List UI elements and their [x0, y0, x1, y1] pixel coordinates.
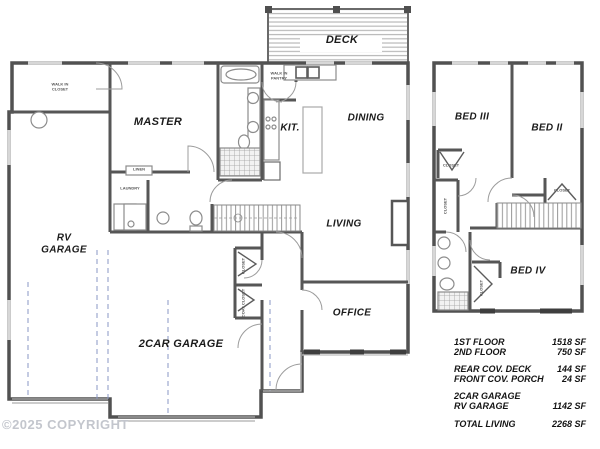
label-walk-in-closet: WALK IN CLOSET [47, 82, 73, 91]
area-value: 24 SF [562, 375, 586, 385]
label-linen: LINEN [124, 168, 154, 173]
first-floor-windows [9, 63, 408, 340]
label-walk-in-pantry: WALK IN PANTRY [266, 71, 292, 80]
room-label-2car-garage: 2CAR GARAGE [139, 338, 224, 350]
area-label: FRONT COV. PORCH [454, 375, 544, 385]
area-value: 750 SF [557, 348, 586, 358]
room-label-kitchen: KIT. [280, 123, 299, 134]
area-summary-table: 1ST FLOOR 1518 SF 2ND FLOOR 750 SF REAR … [454, 338, 586, 429]
area-label: TOTAL LIVING [454, 420, 516, 430]
room-label-bed-iii: BED III [455, 112, 489, 123]
living-media-niche [392, 201, 408, 245]
room-label-master: MASTER [134, 116, 182, 128]
label-closet: CLOSET [242, 258, 247, 274]
kitchen-fixtures [264, 65, 336, 180]
label-bed-iii-closet: CLOSET [438, 164, 464, 169]
area-label: RV GARAGE [454, 402, 509, 412]
label-laundry: LAUNDRY [115, 187, 145, 192]
first-floor-stairs [214, 205, 300, 231]
second-floor-bath-fixtures [438, 237, 468, 310]
water-heater [31, 112, 47, 128]
label-bed-ii-closet: CLOSET [549, 189, 575, 194]
area-value: 1142 SF [553, 402, 586, 412]
second-floor-windows [434, 63, 582, 285]
floor-plan-page: DECK MASTER KIT. DINING LIVING OFFICE RV… [0, 0, 600, 449]
hall-bath-fixtures [157, 211, 202, 231]
room-label-dining: DINING [348, 113, 385, 124]
label-bed-iv-closet: CLOSET [480, 280, 485, 296]
area-row-front-porch: FRONT COV. PORCH 24 SF [454, 375, 586, 385]
copyright-notice: ©2025 COPYRIGHT [2, 417, 129, 432]
area-label: 2ND FLOOR [454, 348, 506, 358]
second-floor-stairs [497, 203, 581, 228]
room-label-office: OFFICE [333, 308, 371, 319]
area-row-total-living: TOTAL LIVING 2268 SF [454, 420, 586, 430]
laundry-fixtures [114, 166, 152, 230]
area-row-rv-garage: RV GARAGE 1142 SF [454, 402, 586, 412]
room-label-living: LIVING [326, 219, 361, 230]
room-label-bed-ii: BED II [531, 123, 562, 134]
area-row-2nd-floor: 2ND FLOOR 750 SF [454, 348, 586, 358]
front-porch-outline [263, 352, 408, 391]
room-label-deck: DECK [326, 34, 358, 46]
area-value: 2268 SF [552, 420, 586, 430]
label-coat-closet: COAT CLOSET [242, 289, 247, 317]
room-label-rv-garage: RV GARAGE [38, 233, 90, 256]
room-label-bed-iv: BED IV [510, 266, 545, 277]
master-bath-fixtures [220, 66, 260, 176]
label-hall-closet: CLOSET [444, 198, 449, 214]
